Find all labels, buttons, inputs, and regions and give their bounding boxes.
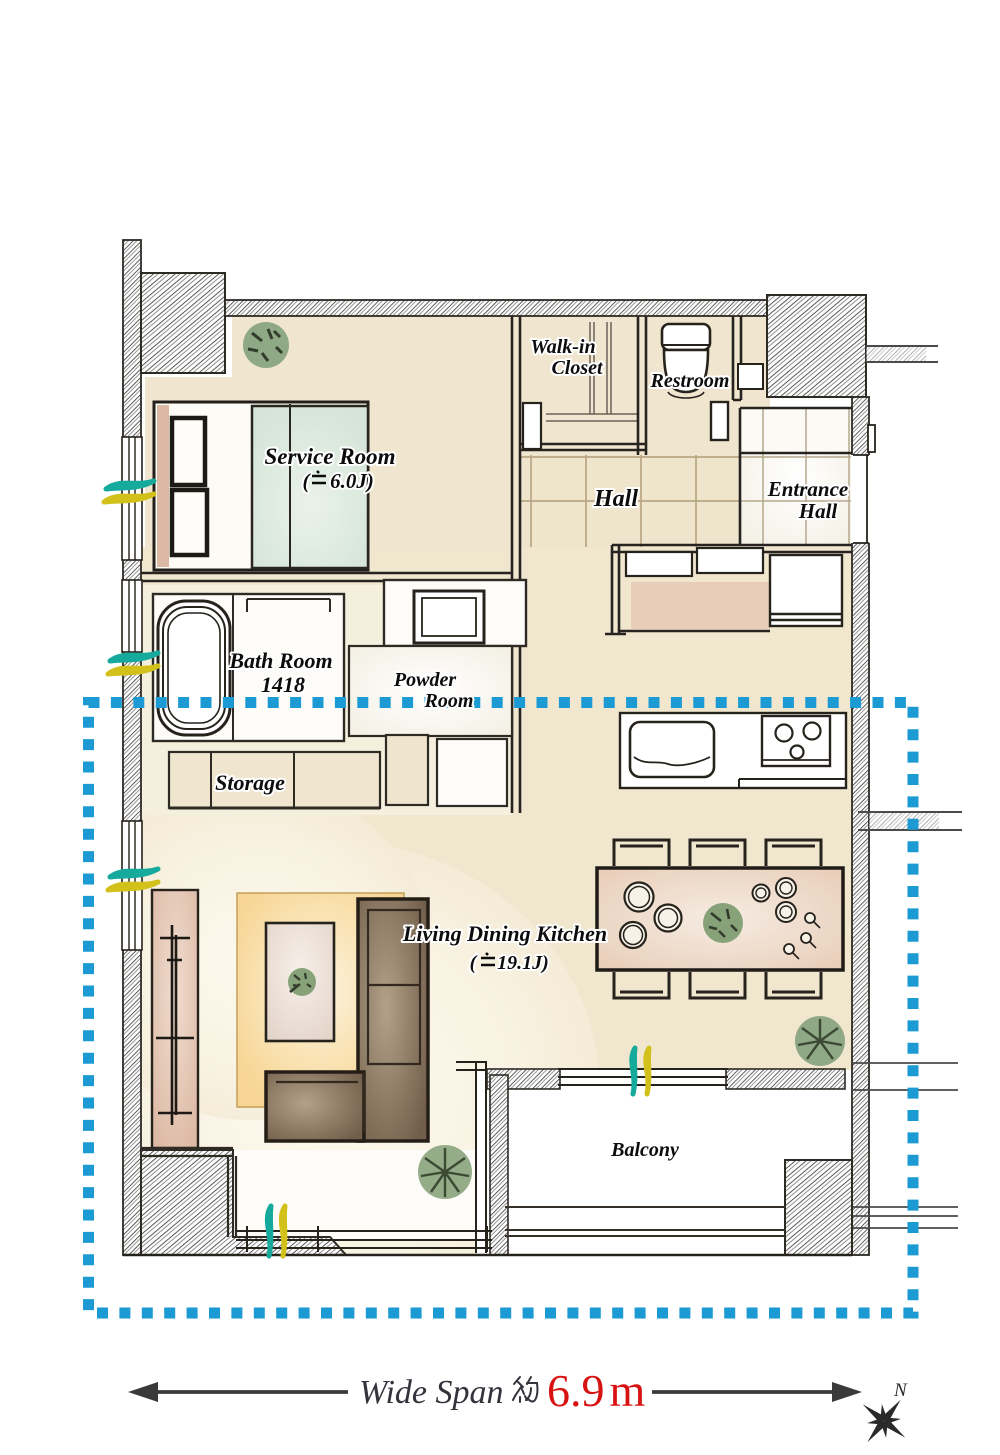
svg-text:Closet: Closet xyxy=(551,357,604,379)
svg-text:Hall: Hall xyxy=(798,499,838,523)
svg-text:Service Room: Service Room xyxy=(265,444,396,469)
svg-text:Storage: Storage xyxy=(215,770,285,795)
svg-text:Powder: Powder xyxy=(393,669,456,691)
svg-text:Restroom: Restroom xyxy=(650,370,730,392)
svg-text:N: N xyxy=(893,1380,908,1401)
svg-text:6.0J): 6.0J) xyxy=(330,469,374,493)
svg-text:Balcony: Balcony xyxy=(610,1139,679,1161)
svg-text:Walk-in: Walk-in xyxy=(530,336,595,358)
svg-text:Living Dining Kitchen: Living Dining Kitchen xyxy=(402,921,607,946)
svg-text:Bath Room: Bath Room xyxy=(228,648,332,673)
svg-text:Hall: Hall xyxy=(593,486,638,512)
svg-text:Entrance: Entrance xyxy=(767,477,849,501)
svg-text:6.9m: 6.9m xyxy=(547,1365,646,1416)
svg-text:Wide Span: Wide Span xyxy=(359,1374,503,1411)
svg-text:Room: Room xyxy=(424,690,474,712)
svg-text:1418: 1418 xyxy=(261,672,305,697)
svg-text:19.1J): 19.1J) xyxy=(497,952,549,974)
